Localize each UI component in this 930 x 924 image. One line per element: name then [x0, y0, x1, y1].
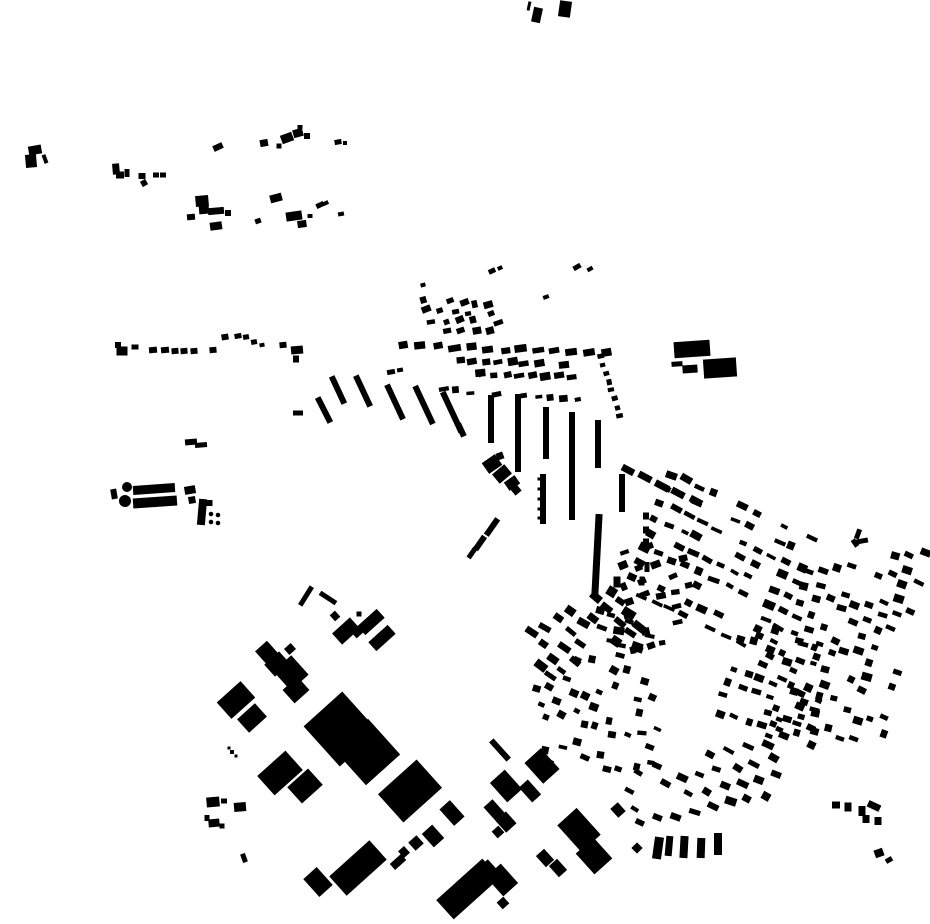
building-footprint — [682, 364, 698, 373]
building-footprint — [315, 396, 333, 424]
building-footprint — [408, 835, 424, 851]
building-footprint — [854, 528, 862, 539]
building-footprint — [524, 626, 539, 639]
building-footprint — [482, 358, 491, 365]
building-footprint — [879, 713, 889, 721]
building-footprint — [554, 371, 565, 379]
building-footprint — [482, 346, 494, 354]
building-footprint — [862, 616, 872, 624]
building-footprint — [343, 141, 347, 145]
building-footprint — [761, 739, 775, 750]
building-footprint — [679, 473, 693, 485]
building-footprint — [234, 333, 242, 339]
building-footprint — [635, 708, 643, 717]
building-footprint — [694, 566, 704, 576]
building-footprint — [797, 713, 805, 720]
building-footprint — [818, 566, 829, 575]
building-footprint — [469, 316, 477, 324]
building-footprint — [596, 624, 607, 632]
building-footprint — [161, 347, 169, 354]
building-footprint-round — [119, 495, 131, 507]
building-footprint — [701, 787, 712, 797]
building-footprint — [452, 386, 459, 393]
building-footprint — [583, 348, 596, 357]
building-footprint — [656, 584, 665, 593]
building-footprint — [230, 750, 234, 754]
building-footprint — [624, 627, 637, 639]
building-footprint — [546, 394, 554, 401]
building-footprint — [298, 125, 303, 129]
building-footprint — [293, 411, 303, 416]
building-footprint — [607, 387, 614, 392]
building-footprint — [501, 347, 511, 354]
building-footprint — [736, 778, 749, 789]
building-footprint — [514, 344, 527, 353]
building-footprint — [459, 298, 470, 307]
building-footprint — [42, 154, 49, 164]
building-footprint — [467, 547, 478, 560]
building-footprint — [695, 603, 708, 614]
building-footprint — [564, 605, 577, 617]
building-footprint — [284, 643, 296, 655]
building-footprint — [646, 641, 656, 650]
building-footprint — [443, 328, 452, 335]
building-footprint — [206, 500, 213, 506]
building-footprint — [750, 559, 761, 569]
building-footprint — [730, 666, 738, 673]
building-footprint — [774, 538, 786, 546]
building-footprint — [859, 806, 866, 816]
building-footprint — [836, 604, 847, 612]
building-footprint — [848, 618, 859, 627]
building-footprint — [212, 142, 224, 152]
building-footprint — [832, 802, 840, 809]
building-footprint — [738, 684, 748, 692]
building-footprint — [210, 221, 223, 231]
building-footprint — [795, 637, 804, 645]
building-footprint — [606, 379, 612, 386]
building-footprint — [603, 371, 610, 377]
building-footprint — [756, 720, 767, 729]
building-footprint — [807, 611, 816, 620]
building-footprint — [490, 770, 522, 803]
building-footprint — [670, 487, 686, 500]
building-footprint — [790, 630, 798, 637]
building-footprint — [319, 591, 338, 606]
building-footprint — [652, 836, 664, 859]
building-footprint — [513, 373, 524, 379]
building-footprint — [611, 681, 619, 690]
building-footprint — [573, 707, 581, 714]
building-footprint — [732, 763, 743, 774]
building-footprint — [669, 812, 681, 822]
building-footprint — [631, 842, 642, 853]
building-footprint — [285, 210, 302, 221]
building-footprint — [806, 740, 816, 750]
building-footprint — [588, 655, 596, 664]
building-footprint — [820, 623, 828, 631]
building-footprint — [28, 144, 42, 155]
building-footprint — [558, 361, 569, 369]
building-footprint — [782, 715, 793, 724]
building-footprint — [538, 622, 552, 633]
building-footprint-round — [122, 482, 132, 492]
building-footprint — [448, 344, 462, 353]
building-footprint — [538, 498, 541, 501]
building-footprint — [812, 652, 821, 661]
building-footprint — [544, 682, 554, 692]
building-footprint — [640, 677, 650, 686]
building-footprint — [847, 562, 857, 569]
building-footprint — [766, 694, 774, 700]
building-footprint — [614, 577, 621, 588]
building-footprint — [133, 495, 178, 508]
building-footprint — [736, 500, 749, 511]
building-footprint — [489, 738, 511, 761]
building-footprint — [888, 683, 897, 691]
building-footprint — [384, 384, 405, 421]
building-footprint — [670, 503, 683, 514]
building-footprint — [671, 589, 680, 595]
building-footprint — [605, 717, 612, 725]
building-footprint — [606, 612, 615, 618]
building-footprint — [705, 749, 716, 759]
building-footprint — [904, 551, 914, 560]
building-footprint — [701, 555, 713, 565]
building-footprint — [610, 802, 625, 818]
building-footprint — [830, 695, 838, 702]
building-footprint — [292, 128, 304, 138]
building-footprint — [149, 347, 157, 354]
building-footprint — [580, 720, 588, 728]
building-footprint — [531, 7, 543, 24]
building-footprint — [781, 657, 792, 667]
building-footprint — [864, 601, 874, 609]
building-footprint — [874, 572, 883, 580]
building-footprint — [747, 759, 760, 769]
building-footprint — [279, 342, 286, 349]
building-footprint — [569, 412, 575, 520]
building-footprint — [819, 680, 831, 691]
building-footprint — [630, 805, 639, 813]
building-footprint — [799, 581, 809, 591]
building-footprint — [184, 485, 196, 495]
building-footprint — [553, 612, 565, 623]
building-footprint — [857, 632, 866, 640]
building-footprint — [793, 728, 801, 737]
building-footprint — [532, 684, 541, 693]
building-footprint — [703, 357, 737, 378]
building-footprints-svg — [0, 0, 930, 924]
building-footprint — [588, 702, 599, 712]
building-footprint — [885, 856, 894, 864]
building-footprint — [651, 599, 663, 607]
building-footprint — [540, 474, 546, 524]
building-footprint — [711, 765, 721, 772]
building-footprint — [681, 529, 689, 536]
building-footprint — [562, 675, 571, 682]
building-footprint — [329, 375, 347, 405]
building-footprint — [465, 311, 472, 316]
building-footprint — [596, 751, 604, 759]
building-footprint — [803, 682, 814, 693]
building-footprint — [353, 374, 373, 407]
building-footprint — [195, 195, 209, 207]
building-footprint — [397, 368, 404, 373]
building-footprint — [719, 781, 731, 791]
building-footprint — [804, 625, 815, 633]
building-footprint — [655, 592, 666, 600]
building-footprint — [738, 589, 749, 598]
building-footprint — [673, 340, 710, 358]
building-footprint — [269, 193, 283, 204]
building-footprint — [378, 759, 442, 822]
building-footprint — [565, 348, 577, 356]
building-footprint — [566, 374, 576, 380]
building-footprint — [664, 522, 675, 530]
building-footprint — [723, 677, 732, 687]
buildings-layer — [25, 0, 930, 919]
building-footprint — [133, 483, 176, 495]
building-footprint — [687, 548, 700, 558]
building-footprint — [683, 789, 693, 797]
building-footprint — [475, 369, 486, 377]
building-footprint — [789, 667, 798, 675]
building-footprint — [209, 347, 216, 354]
building-footprint — [491, 391, 501, 398]
building-footprint — [778, 649, 786, 657]
building-footprint — [591, 514, 602, 594]
building-footprint — [847, 675, 856, 684]
building-footprint — [780, 523, 788, 530]
building-footprint — [743, 572, 752, 580]
building-footprint — [421, 304, 432, 313]
building-footprint — [863, 815, 870, 823]
building-footprint — [637, 471, 653, 484]
building-footprint — [791, 613, 802, 621]
building-footprint — [329, 840, 387, 895]
building-footprint — [888, 569, 898, 578]
building-footprint — [873, 626, 883, 635]
building-footprint — [709, 488, 718, 497]
building-footprint — [741, 794, 752, 804]
building-footprint — [528, 371, 538, 379]
building-footprint — [541, 746, 550, 755]
building-footprint — [648, 693, 658, 702]
building-footprint — [838, 647, 849, 656]
building-footprint — [637, 577, 647, 585]
building-footprint — [187, 214, 195, 221]
building-footprint — [848, 735, 858, 743]
building-footprint — [419, 296, 427, 304]
building-footprint — [624, 732, 632, 739]
building-footprint — [608, 665, 619, 676]
building-footprint — [125, 169, 130, 177]
building-footprint — [140, 179, 148, 187]
building-footprint — [780, 557, 791, 567]
building-footprint — [768, 752, 780, 763]
building-footprint — [769, 638, 778, 645]
building-footprint — [221, 799, 227, 804]
building-footprint — [730, 569, 739, 576]
building-footprint — [456, 327, 465, 335]
building-footprint — [820, 665, 830, 674]
building-footprint — [811, 594, 821, 603]
building-footprint — [277, 144, 282, 149]
building-footprint — [718, 691, 728, 698]
building-footprint — [488, 267, 496, 274]
building-footprint — [816, 582, 826, 589]
building-footprint — [357, 612, 362, 617]
building-footprint — [841, 591, 851, 598]
building-footprint — [234, 802, 247, 812]
building-footprint — [110, 489, 118, 500]
building-footprint — [574, 638, 586, 649]
building-footprint — [660, 778, 672, 788]
building-footprint — [452, 309, 460, 315]
building-footprint — [626, 572, 637, 582]
building-footprint — [586, 266, 593, 272]
building-footprint — [611, 395, 618, 401]
building-footprint — [856, 685, 867, 695]
building-footprint — [153, 173, 159, 178]
building-footprint — [544, 670, 557, 681]
building-footprint — [580, 691, 591, 702]
building-footprint — [132, 345, 139, 350]
building-footprint — [768, 680, 778, 687]
building-footprint — [221, 333, 229, 340]
building-footprint — [766, 553, 776, 561]
building-footprint — [890, 551, 900, 560]
building-footprint — [259, 139, 268, 147]
building-footprint — [515, 394, 521, 472]
building-footprint — [607, 731, 616, 739]
building-footprint — [893, 593, 905, 604]
building-footprint — [595, 689, 603, 696]
building-footprint — [673, 542, 685, 552]
building-footprint — [867, 800, 882, 812]
building-footprint — [330, 611, 341, 622]
building-footprint — [783, 591, 793, 600]
building-footprint — [117, 347, 128, 356]
building-footprint — [398, 341, 408, 350]
building-footprint — [293, 356, 299, 363]
building-footprint — [439, 800, 464, 826]
building-footprint — [776, 568, 789, 580]
building-footprint — [805, 568, 814, 575]
building-footprint — [843, 706, 852, 713]
building-footprint — [730, 517, 740, 524]
building-footprint — [696, 518, 708, 527]
building-footprint — [689, 529, 703, 541]
building-footprint — [259, 343, 265, 348]
building-footprint — [753, 624, 763, 634]
building-footprint — [707, 576, 720, 585]
building-footprint — [622, 665, 631, 674]
building-footprint — [565, 626, 577, 637]
building-footprint — [892, 610, 902, 617]
building-footprint — [720, 632, 731, 640]
building-footprint — [649, 515, 658, 524]
building-footprint — [600, 362, 606, 367]
building-footprint — [446, 297, 455, 304]
building-footprint — [678, 554, 688, 562]
building-footprint — [830, 636, 840, 645]
building-footprint — [684, 581, 693, 588]
building-footprint — [714, 833, 722, 855]
building-footprint — [615, 596, 626, 606]
building-footprint — [707, 801, 720, 812]
building-footprint — [387, 369, 396, 375]
building-footprint — [697, 838, 706, 858]
building-footprint — [556, 709, 567, 719]
building-footprint — [875, 817, 882, 825]
building-footprint — [602, 765, 612, 773]
building-footprint — [551, 696, 562, 705]
building-footprint — [770, 770, 782, 779]
building-footprint — [744, 521, 755, 531]
building-footprint — [254, 218, 261, 225]
building-footprint — [422, 825, 444, 848]
building-footprint — [228, 747, 231, 750]
building-footprint — [828, 649, 837, 657]
building-footprint — [810, 661, 817, 667]
building-footprint — [778, 606, 789, 616]
building-footprint — [466, 391, 474, 395]
building-footprint — [665, 836, 674, 857]
building-footprint — [734, 552, 746, 562]
building-footprint — [905, 607, 915, 616]
building-footprint — [866, 715, 874, 722]
building-footprint — [534, 359, 545, 368]
building-footprint — [543, 407, 549, 459]
building-footprint — [139, 173, 146, 179]
building-footprint — [716, 561, 725, 568]
building-footprint — [519, 780, 541, 803]
building-footprint — [485, 326, 495, 335]
building-footprint — [689, 808, 701, 816]
building-footprint — [493, 359, 503, 365]
building-footprint — [760, 616, 771, 624]
building-footprint — [723, 746, 735, 755]
building-footprint — [195, 442, 207, 448]
building-footprint — [590, 721, 598, 730]
building-footprint — [439, 386, 450, 392]
building-footprint — [538, 638, 549, 649]
building-footprint — [436, 307, 444, 314]
building-footprint — [180, 348, 187, 355]
building-footprint — [334, 139, 342, 145]
building-footprint — [679, 836, 688, 858]
building-footprint — [694, 484, 705, 492]
building-footprint — [368, 625, 395, 651]
building-footprint — [650, 559, 662, 569]
building-footprint — [483, 300, 494, 309]
building-footprint — [901, 565, 913, 575]
building-footprint — [589, 590, 603, 604]
building-footprint — [729, 713, 738, 720]
building-footprint — [542, 294, 549, 300]
building-footprint — [852, 716, 863, 726]
building-footprint — [251, 339, 258, 345]
building-footprint — [190, 348, 197, 355]
building-footprint — [668, 572, 678, 580]
building-footprint — [684, 598, 694, 607]
building-footprint — [297, 220, 307, 228]
building-footprint — [920, 547, 930, 557]
building-footprint — [772, 704, 780, 712]
building-footprint — [695, 771, 705, 779]
